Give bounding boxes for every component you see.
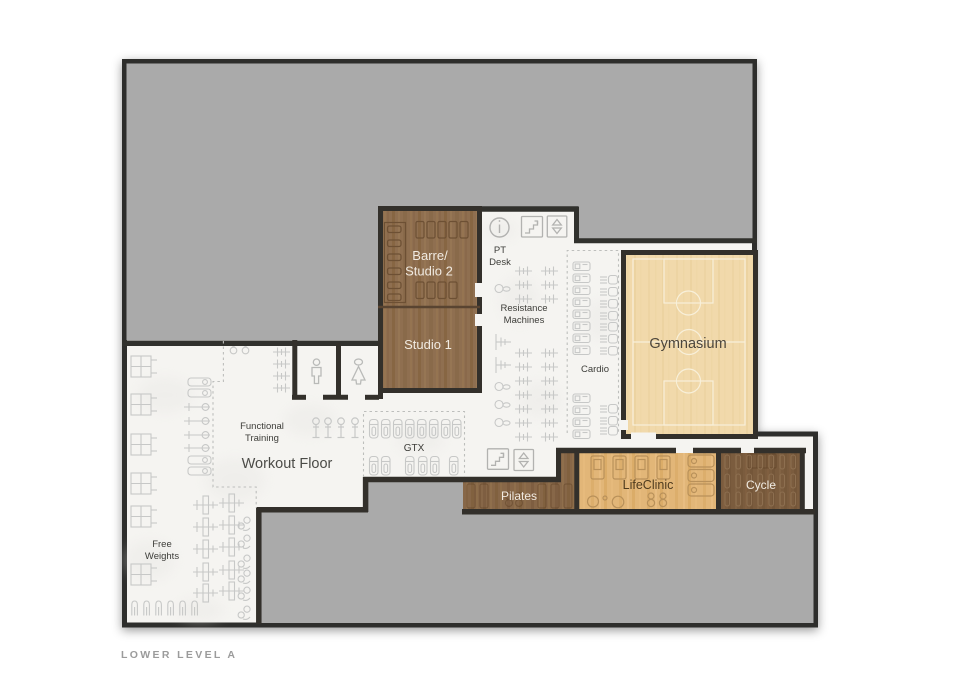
- svg-text:PT: PT: [494, 245, 506, 256]
- svg-text:Machines: Machines: [504, 315, 545, 326]
- svg-text:Barre/: Barre/: [412, 248, 448, 263]
- svg-text:Resistance: Resistance: [501, 303, 548, 314]
- svg-text:LifeClinic: LifeClinic: [623, 478, 674, 492]
- svg-text:Free: Free: [152, 539, 172, 550]
- svg-text:Weights: Weights: [145, 551, 179, 562]
- svg-text:LOWER LEVEL A: LOWER LEVEL A: [121, 649, 237, 661]
- svg-text:Studio 2: Studio 2: [405, 264, 453, 279]
- svg-text:Cardio: Cardio: [581, 364, 609, 375]
- svg-text:GTX: GTX: [404, 443, 425, 454]
- svg-text:Gymnasium: Gymnasium: [649, 336, 726, 352]
- svg-text:Studio 1: Studio 1: [404, 337, 452, 352]
- svg-text:Desk: Desk: [489, 257, 511, 268]
- svg-text:Training: Training: [245, 433, 279, 444]
- svg-text:Workout Floor: Workout Floor: [242, 456, 333, 472]
- svg-text:Functional: Functional: [240, 421, 284, 432]
- svg-text:Pilates: Pilates: [501, 489, 537, 503]
- svg-text:Cycle: Cycle: [746, 478, 776, 492]
